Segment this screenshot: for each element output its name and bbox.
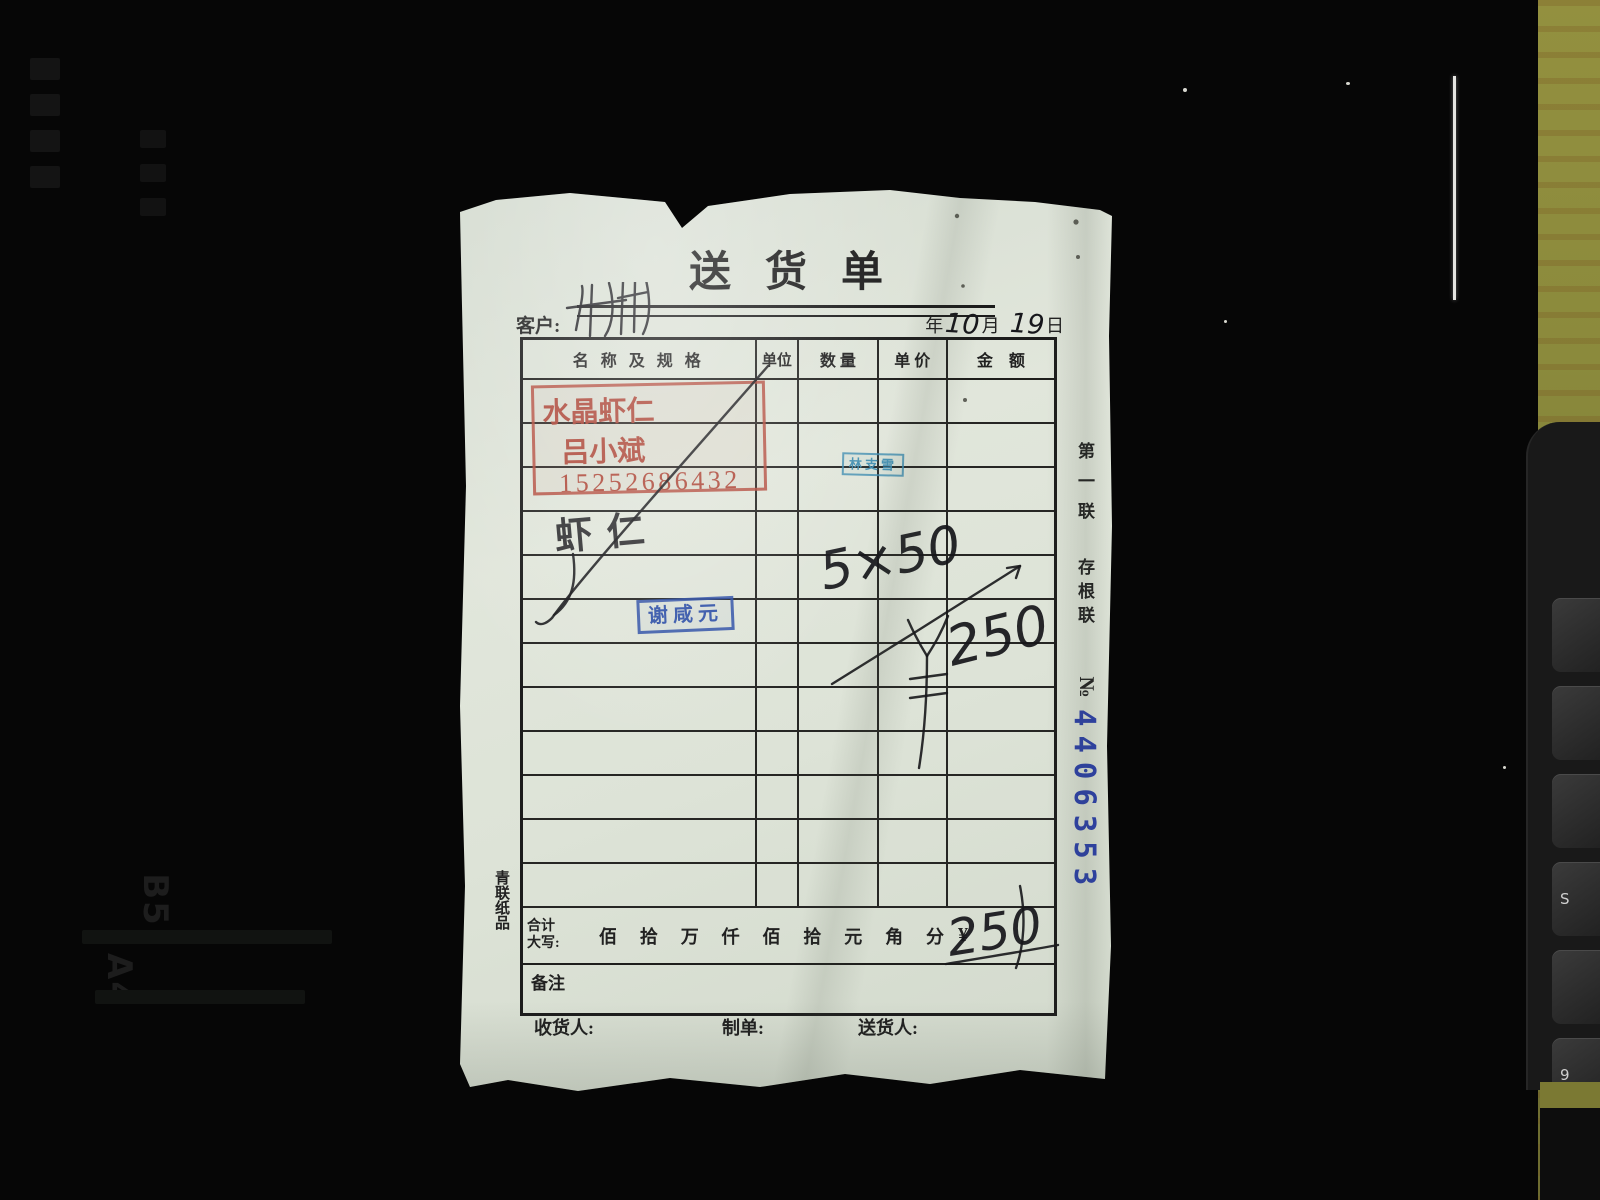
header-unit-price: 单 价 xyxy=(879,340,948,380)
glass-reflection-line xyxy=(1453,76,1456,300)
header-quantity: 数 量 xyxy=(799,340,879,380)
grid-cell xyxy=(799,776,879,820)
stub-no-sign: № xyxy=(1069,667,1099,707)
device-keys: S9 xyxy=(1552,598,1600,1112)
grid-cell xyxy=(757,864,799,908)
grid-cell xyxy=(799,864,879,908)
delivery-note-paper: 送货单 客户: 年 10 月 19 xyxy=(460,186,1112,1092)
device-key: S xyxy=(1552,862,1600,936)
grid-cell xyxy=(799,600,879,644)
remark-label: 备注 xyxy=(531,974,565,993)
total-label-line1: 合计 xyxy=(527,919,579,936)
grid-cell xyxy=(799,688,879,732)
grid-cell xyxy=(948,864,1054,908)
total-label: 合计 大写: xyxy=(523,919,579,953)
grid-cell xyxy=(523,732,757,776)
grid-cell xyxy=(879,380,948,424)
grid-cell xyxy=(757,556,799,600)
device-key xyxy=(1552,774,1600,848)
grid-cell xyxy=(948,556,1054,600)
year-label: 年 xyxy=(925,312,943,338)
serial-number: 4406353 xyxy=(1068,709,1102,889)
unit-char: 分 xyxy=(926,923,944,949)
grid-cell xyxy=(523,776,757,820)
unit-char: 角 xyxy=(885,923,903,949)
grid-cell xyxy=(523,556,757,600)
grid-cell xyxy=(879,688,948,732)
film-square xyxy=(140,198,166,216)
grid-cell xyxy=(948,776,1054,820)
grid-cell xyxy=(879,776,948,820)
unit-char: 元 xyxy=(844,923,862,949)
total-in-words-row: 合计 大写: 佰拾万仟佰拾元角分 ¥ xyxy=(523,908,1054,965)
grid-cell xyxy=(757,512,799,556)
paper-size-mark-b5: B5 xyxy=(135,873,175,927)
bed-bar xyxy=(95,990,305,1004)
grid-cell xyxy=(948,380,1054,424)
stamp-company: 水晶虾仁 xyxy=(542,387,755,431)
grid-cell xyxy=(799,380,879,424)
device-panel: S9 xyxy=(1526,422,1600,1090)
unit-char: 万 xyxy=(681,923,699,949)
grid-cell xyxy=(879,600,948,644)
grid-cell xyxy=(879,512,948,556)
header-amount: 金 额 xyxy=(948,340,1054,380)
grid-cell xyxy=(757,732,799,776)
copier-film-marks-2 xyxy=(140,130,170,232)
grid-cell xyxy=(757,644,799,688)
grid-cell xyxy=(879,732,948,776)
dust-speck xyxy=(1224,320,1227,323)
grid-cell xyxy=(879,556,948,600)
date-group: 年 10 月 19 日 xyxy=(925,311,1064,338)
grid-cell xyxy=(948,820,1054,864)
copier-film-marks xyxy=(30,58,66,202)
grid-cell xyxy=(799,556,879,600)
month-value-handwritten: 10 xyxy=(944,310,980,339)
grid-cell xyxy=(948,732,1054,776)
grid-cell xyxy=(523,512,757,556)
table-header-row: 名 称 及 规 格 单位 数 量 单 价 金 额 xyxy=(523,340,1054,380)
grid-cell xyxy=(799,644,879,688)
customer-label: 客户: xyxy=(516,311,560,338)
meta-row: 客户: 年 10 月 19 日 xyxy=(516,302,1064,338)
day-value-handwritten: 19 xyxy=(1009,310,1045,339)
grid-cell xyxy=(948,424,1054,468)
remark-row: 备注 xyxy=(523,965,1054,1013)
wood-sliver xyxy=(1540,1082,1600,1108)
paper-speck xyxy=(955,214,959,218)
header-unit: 单位 xyxy=(757,340,799,380)
grid-cell xyxy=(757,600,799,644)
grid-cell xyxy=(879,820,948,864)
grid-cell xyxy=(799,732,879,776)
dust-speck xyxy=(1183,88,1187,92)
document-title: 送货单 xyxy=(460,238,1112,299)
amount-units: 佰拾万仟佰拾元角分 xyxy=(579,923,958,949)
stub-root-label: 存根联 xyxy=(1072,558,1097,630)
dust-speck xyxy=(1503,766,1506,769)
film-square xyxy=(30,58,60,80)
unit-char: 佰 xyxy=(763,923,781,949)
photo-scene: B5 A4 S9 送货单 客户: xyxy=(0,0,1600,1200)
grid-cell xyxy=(948,644,1054,688)
grid-cell xyxy=(948,468,1054,512)
grid-cell xyxy=(879,644,948,688)
red-seller-stamp: 水晶虾仁 吕小斌 15252686432 xyxy=(531,381,767,496)
device-key xyxy=(1552,950,1600,1024)
unit-char: 拾 xyxy=(640,923,658,949)
grid-cell xyxy=(948,512,1054,556)
film-square xyxy=(30,94,60,116)
film-square xyxy=(140,130,166,148)
stub-copy-label: 第一联 xyxy=(1072,442,1097,532)
grid-cell xyxy=(799,820,879,864)
grid-cell xyxy=(757,688,799,732)
grid-cell xyxy=(948,688,1054,732)
shadow-below xyxy=(1540,1108,1600,1200)
grid-cell xyxy=(523,644,757,688)
grid-cell xyxy=(799,512,879,556)
device-key xyxy=(1552,598,1600,672)
bed-bar xyxy=(82,930,332,944)
grid-cell xyxy=(523,864,757,908)
grid-cell xyxy=(757,776,799,820)
film-square xyxy=(30,130,60,152)
receiver-label: 收货人: xyxy=(534,1014,594,1040)
stamp-phone: 15252686432 xyxy=(544,467,756,497)
printer-mark: 青联纸品 xyxy=(492,870,510,930)
unit-char: 佰 xyxy=(599,923,617,949)
day-label: 日 xyxy=(1046,312,1064,338)
grid-cell xyxy=(523,688,757,732)
header-name-spec: 名 称 及 规 格 xyxy=(523,340,757,380)
maker-label: 制单: xyxy=(722,1014,764,1040)
film-square xyxy=(140,164,166,182)
device-key xyxy=(1552,686,1600,760)
grid-cell xyxy=(757,820,799,864)
blue-name-stamp: 谢咸元 xyxy=(636,596,734,634)
film-square xyxy=(30,166,60,188)
paper-speck xyxy=(1073,219,1078,224)
dust-speck xyxy=(1346,82,1350,85)
currency-sign: ¥ xyxy=(958,924,1054,947)
blue-small-stamp: 林支雪 xyxy=(842,452,905,477)
grid-cell xyxy=(879,864,948,908)
grid-cell xyxy=(523,820,757,864)
unit-char: 仟 xyxy=(722,923,740,949)
unit-char: 拾 xyxy=(803,923,821,949)
customer-signature xyxy=(562,282,658,338)
month-label: 月 xyxy=(982,312,1000,338)
total-label-line2: 大写: xyxy=(527,936,579,953)
grid-cell xyxy=(948,600,1054,644)
deliverer-label: 送货人: xyxy=(858,1014,918,1040)
